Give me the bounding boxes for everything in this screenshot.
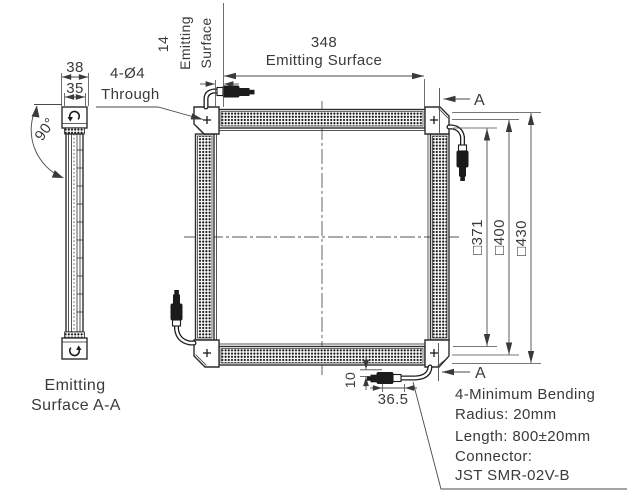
holes-label-line1: 4-Ø4 <box>110 65 145 82</box>
dim-36-5-value: 36.5 <box>378 391 409 408</box>
led-rail-right <box>433 136 448 338</box>
side-dim-38-label: 38 <box>66 59 84 76</box>
side-angle-90: 90° <box>31 105 65 182</box>
side-dim-35-label: 35 <box>66 80 84 97</box>
dim-36-5: 36.5 <box>370 384 417 408</box>
side-led-strip-bottom <box>65 332 85 338</box>
dim-400-label: □400 <box>491 219 508 255</box>
dim-348-label: Emitting Surface <box>266 52 382 69</box>
led-rail-bottom <box>221 349 423 364</box>
led-rail-top <box>221 112 423 127</box>
cable-note-line4: Connector: <box>455 448 532 465</box>
note-holes: 4-Ø4 Through <box>96 65 203 120</box>
dim-14-value: 14 <box>155 36 171 52</box>
cable-top-left <box>206 86 254 107</box>
annotations: 348 Emitting Surface 14 Emitting Surface… <box>96 3 627 489</box>
side-bottom-block <box>62 332 87 359</box>
cable-top-right <box>449 127 468 181</box>
connector-plug-bottom-left <box>171 304 182 320</box>
cable-note-line1: 4-Minimum Bending <box>455 386 595 403</box>
led-rail-left <box>198 136 213 338</box>
side-dim-35: 35 <box>65 80 86 106</box>
side-angle-label: 90° <box>31 115 59 144</box>
connector-plug-top-right <box>457 151 468 167</box>
side-view: 38 35 90° <box>31 59 121 414</box>
holes-label-line2: Through <box>101 86 160 103</box>
connector-plug-bottom-right <box>377 373 393 384</box>
section-label-top: A <box>474 92 485 109</box>
section-label-bottom: A <box>475 365 486 382</box>
dim-10-value: 10 <box>342 372 358 388</box>
dim-14-label2: Surface <box>198 17 214 68</box>
cable-note-line2: Radius: 20mm <box>455 406 557 423</box>
dim-14-label1: Emitting <box>177 16 193 70</box>
side-view-caption-line1: Emitting <box>45 377 106 394</box>
side-view-caption-line2: Surface A-A <box>31 397 121 414</box>
connector-plug-top-left <box>223 86 239 97</box>
dim-348-value: 348 <box>311 34 337 51</box>
cable-note-line5: JST SMR-02V-B <box>455 467 570 484</box>
dim-371-label: □371 <box>469 219 486 255</box>
cable-note: 4-Minimum Bending Radius: 20mm Length: 8… <box>413 382 627 489</box>
front-view-panel <box>171 86 468 384</box>
side-top-block <box>62 107 87 134</box>
technical-drawing-canvas: 38 35 90° <box>0 0 642 503</box>
cable-note-line3: Length: 800±20mm <box>455 428 591 445</box>
side-led-strip-top <box>65 128 85 134</box>
dim-430-label: □430 <box>513 220 530 256</box>
side-body-bar <box>66 134 83 332</box>
light-panel-drawing: 38 35 90° <box>0 0 642 503</box>
cable-bottom-left <box>171 291 194 344</box>
